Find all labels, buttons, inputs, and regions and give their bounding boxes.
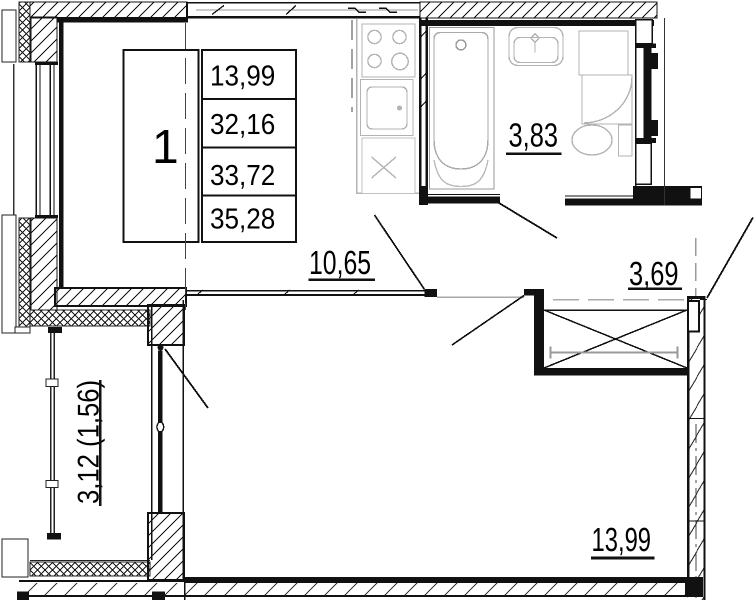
svg-text:10,65: 10,65 [309, 245, 371, 282]
svg-text:1: 1 [152, 121, 179, 174]
svg-text:3,83: 3,83 [509, 118, 559, 155]
svg-text:32,16: 32,16 [210, 109, 275, 141]
svg-text:13,99: 13,99 [210, 61, 275, 93]
svg-text:33,72: 33,72 [210, 160, 275, 192]
svg-text:35,28: 35,28 [210, 204, 275, 236]
svg-text:13,99: 13,99 [592, 522, 652, 559]
